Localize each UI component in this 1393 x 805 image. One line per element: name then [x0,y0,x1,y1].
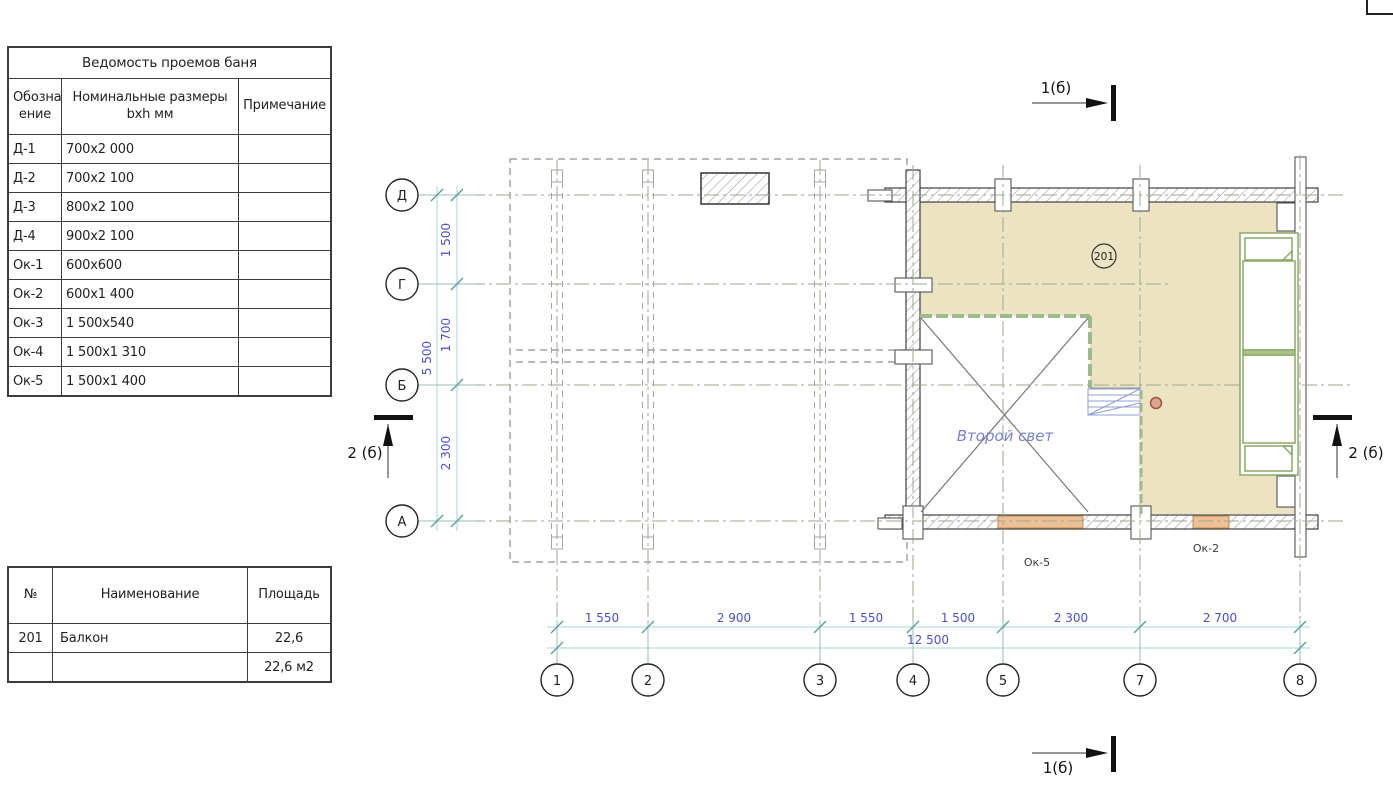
svg-text:2 700: 2 700 [1203,611,1237,625]
bottom-wall [885,515,1318,529]
svg-text:2 (б): 2 (б) [1348,444,1383,462]
svg-text:1(б): 1(б) [1041,79,1072,97]
svg-text:2 300: 2 300 [1054,611,1088,625]
bed-furniture [1240,233,1298,475]
drawing-canvas: Ведомость проемов баня Обознач ение Номи… [0,0,1393,805]
section-mark-left: 2 (б) [347,415,413,478]
svg-text:1(б): 1(б) [1043,759,1074,777]
svg-text:1 700: 1 700 [439,318,453,352]
stove-pipe-icon [1151,398,1162,409]
chimney-block [701,173,769,204]
svg-text:Г: Г [398,278,406,293]
svg-text:1 500: 1 500 [941,611,975,625]
svg-text:2 (б): 2 (б) [347,444,382,462]
svg-text:А: А [398,515,407,530]
svg-text:8: 8 [1296,674,1304,689]
svg-text:2: 2 [644,674,652,689]
svg-text:5 500: 5 500 [420,341,434,375]
svg-text:1 500: 1 500 [439,223,453,257]
svg-text:1 550: 1 550 [585,611,619,625]
window-ok5 [998,516,1083,528]
void-cross [921,318,1088,512]
section-mark-bottom: 1(б) [1032,736,1116,777]
overhang-post-strips [552,170,826,549]
svg-text:4: 4 [909,674,917,689]
svg-text:12 500: 12 500 [907,633,949,647]
stairs-icon [1088,389,1140,415]
svg-text:Б: Б [398,379,407,394]
window-ok2-label: Ок-2 [1193,542,1219,555]
axis-bubbles-cols: 1 2 3 4 5 7 8 [541,664,1316,696]
second-light-label: Второй свет [957,427,1055,445]
axis-bubbles-rows: Д Г Б А [386,179,418,537]
sheet-frame-corner [1367,0,1393,14]
svg-text:5: 5 [999,674,1007,689]
svg-text:1 550: 1 550 [849,611,883,625]
window-ok2 [1193,516,1229,528]
section-mark-right: 2 (б) [1313,415,1384,478]
svg-text:2 300: 2 300 [439,436,453,470]
roof-overhang-outline [510,159,907,562]
svg-text:7: 7 [1136,674,1144,689]
svg-text:Д: Д [397,189,407,204]
svg-text:3: 3 [816,674,824,689]
window-ok5-label: Ок-5 [1024,556,1050,569]
svg-text:2 900: 2 900 [717,611,751,625]
svg-text:201: 201 [1094,251,1114,263]
floor-plan-svg: 201 Второй свет Ок-5 Ок-2 [0,0,1393,805]
section-mark-top: 1(б) [1032,79,1116,121]
svg-text:1: 1 [553,674,561,689]
